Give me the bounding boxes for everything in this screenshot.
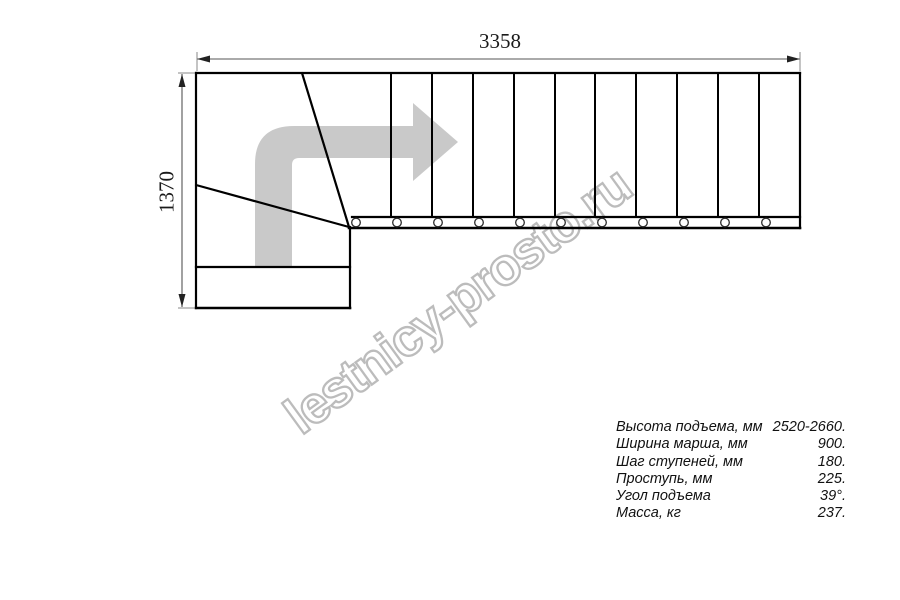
spec-table: Высота подъема, мм 2520-2660. Ширина мар… [616,419,846,523]
spec-row-flight-width: Ширина марша, мм 900. [616,436,846,453]
turn-right-arrow-icon [255,103,458,268]
spec-label: Угол подъема [616,488,711,505]
dimension-left [178,73,195,308]
spec-label: Проступь, мм [616,471,712,488]
dim-arrow-left [197,56,210,63]
dim-arrow-right [787,56,800,63]
spec-row-rise-angle: Угол подъема 39°. [616,488,846,505]
spec-row-tread-depth: Проступь, мм 225. [616,471,846,488]
dimension-top [197,52,800,71]
spec-label: Ширина марша, мм [616,436,748,453]
dim-arrow-up [179,74,186,87]
staircase-plan-page: lestnicy-prosto.ru [0,0,900,600]
spec-row-step-pitch: Шаг ступеней, мм 180. [616,454,846,471]
spec-label: Шаг ступеней, мм [616,454,743,471]
dimension-width-label: 3358 [458,29,542,54]
spec-row-mass: Масса, кг 237. [616,505,846,522]
spec-value: 900. [818,436,846,453]
spec-row-rise-height: Высота подъема, мм 2520-2660. [616,419,846,436]
spec-value: 180. [818,454,846,471]
baluster-circles [352,218,771,227]
spec-value: 2520-2660. [773,419,846,436]
dimension-height-label: 1370 [155,171,180,213]
spec-value: 39°. [820,488,846,505]
spec-value: 237. [818,505,846,522]
spec-value: 225. [818,471,846,488]
spec-label: Масса, кг [616,505,681,522]
spec-label: Высота подъема, мм [616,419,763,436]
dim-arrow-down [179,294,186,307]
